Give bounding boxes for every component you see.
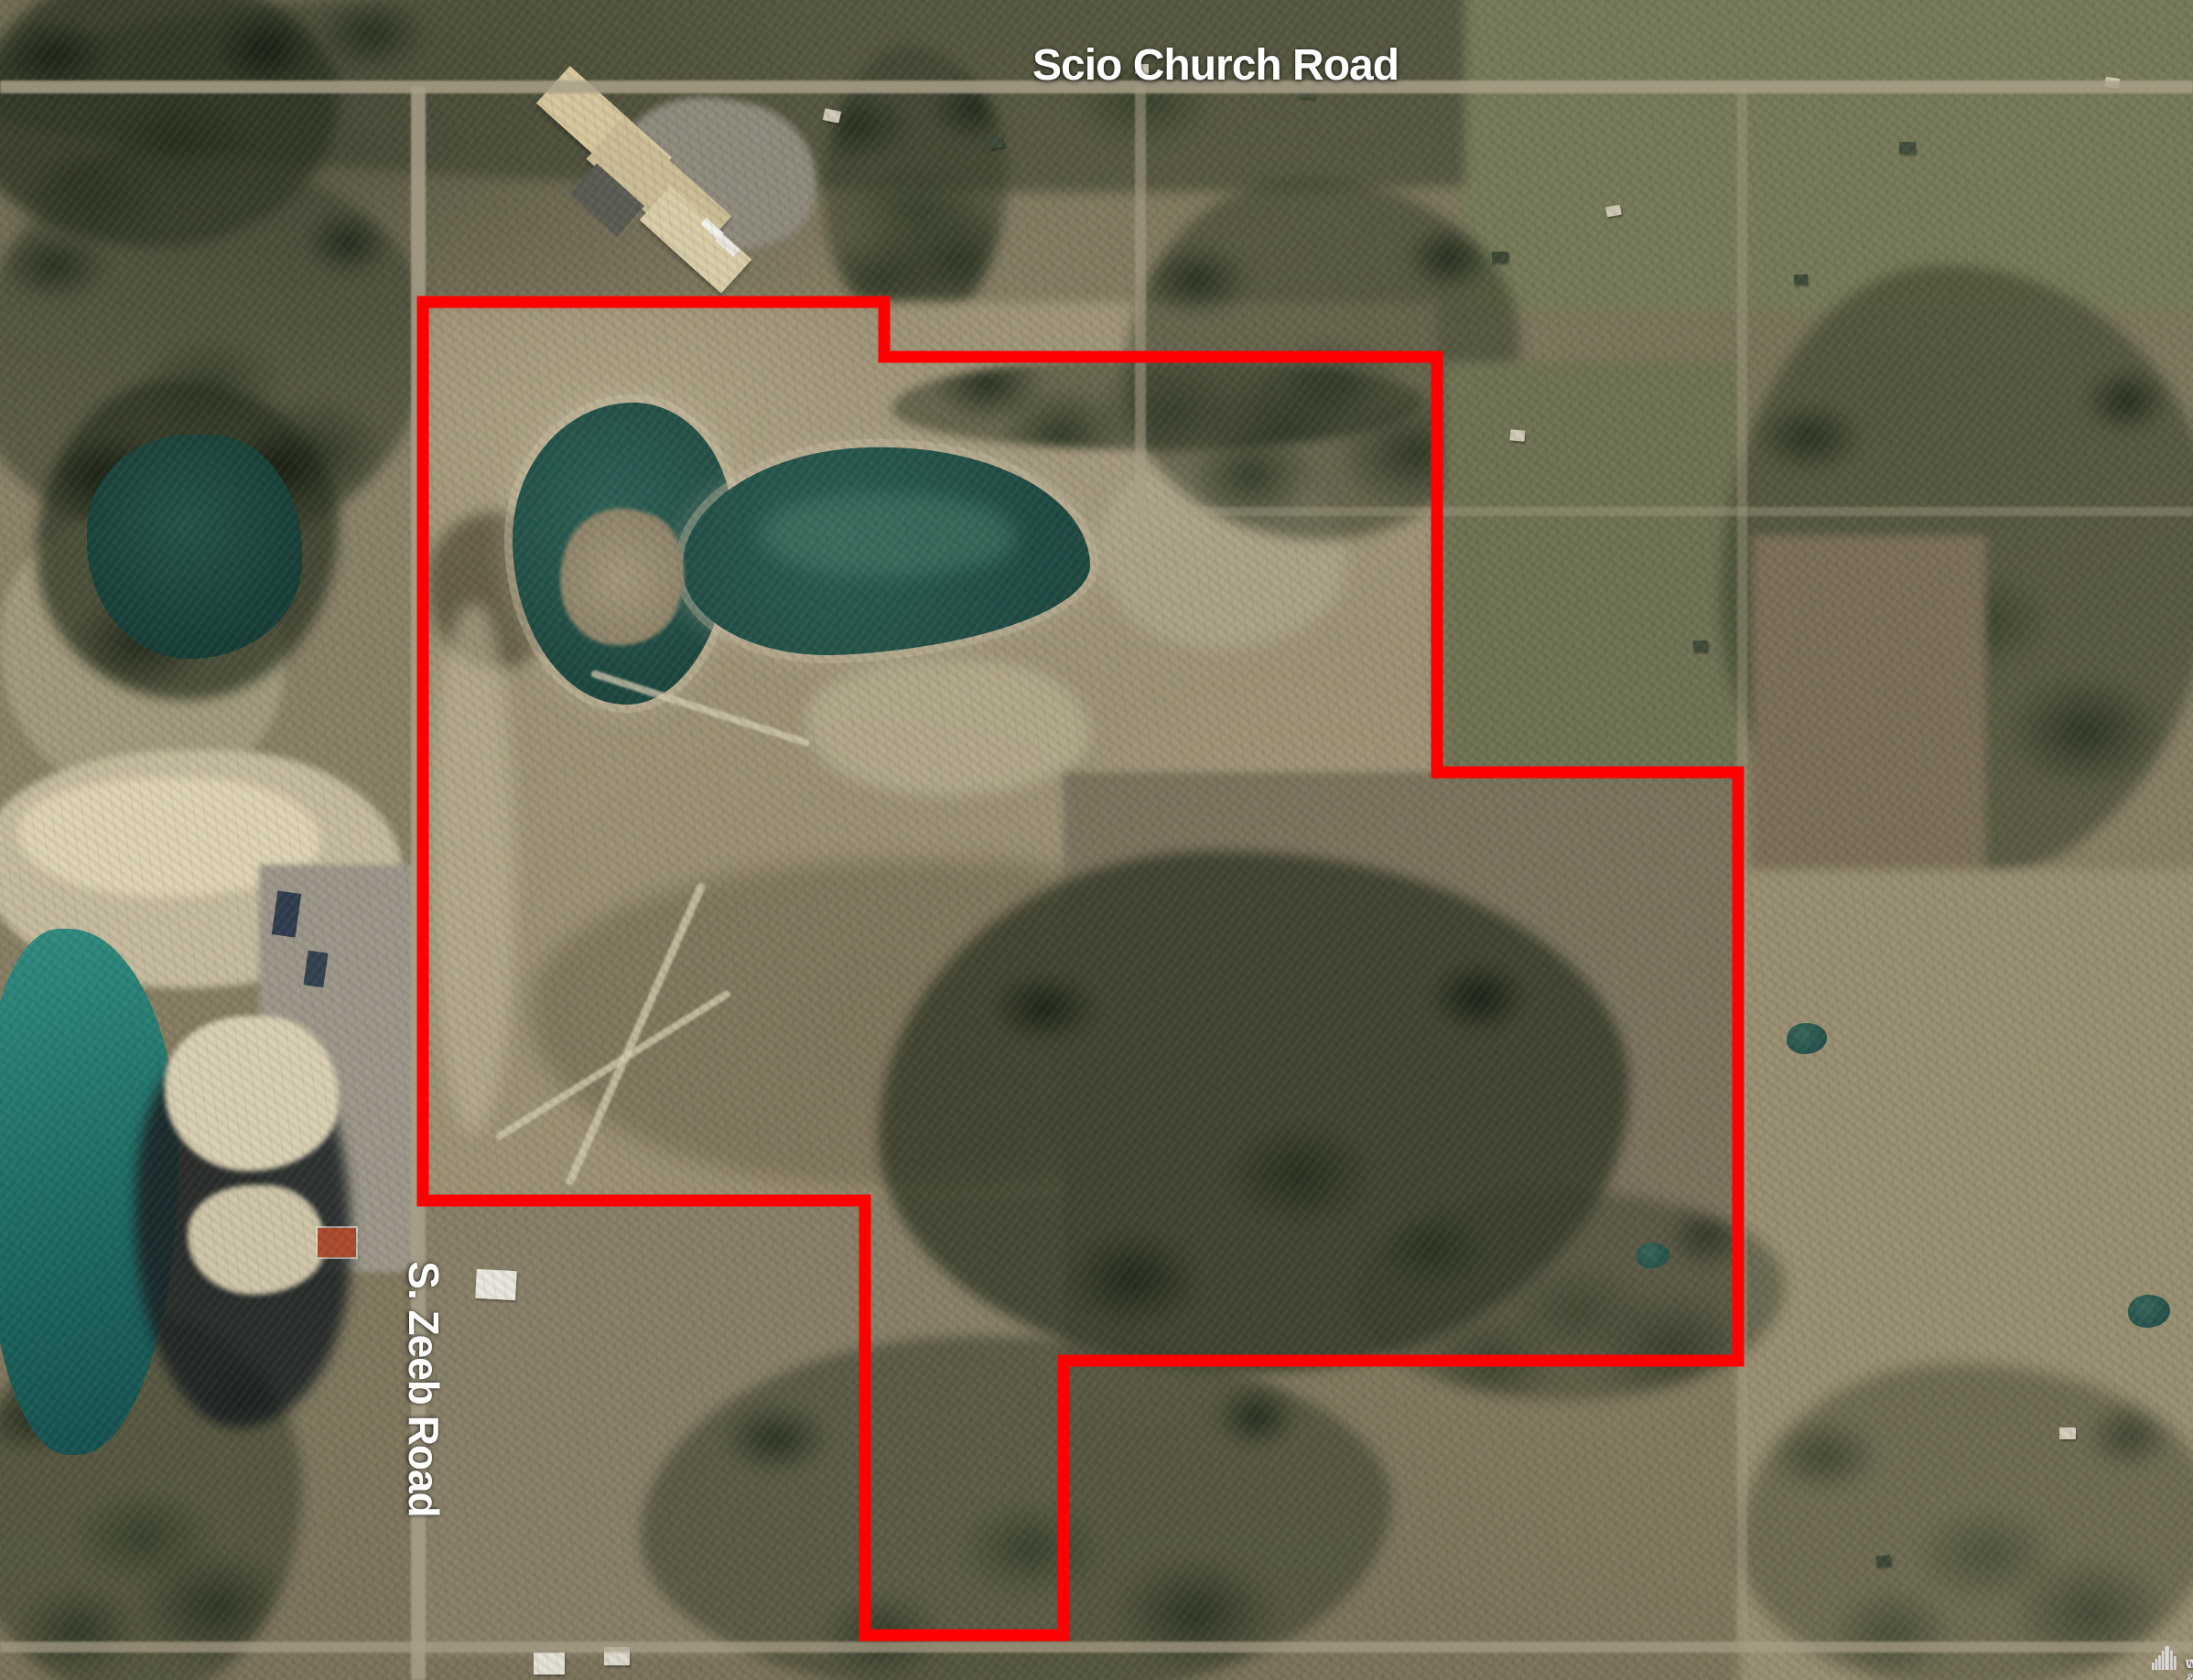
aerial-map: Scio Church Road S. Zeeb Road CUSHMAN & … <box>0 0 2193 1680</box>
building-bars-logo-icon <box>2152 1643 2179 1671</box>
watermark-line2: WAKEFIELD <box>2186 1657 2193 1672</box>
cushman-wakefield-watermark: CUSHMAN & WAKEFIELD <box>2152 1643 2186 1671</box>
property-boundary-overlay <box>0 0 2193 1680</box>
road-label-s-zeeb: S. Zeeb Road <box>399 1261 448 1516</box>
boundary-polygon <box>423 302 1738 1635</box>
road-label-scio-church: Scio Church Road <box>1032 40 1399 91</box>
